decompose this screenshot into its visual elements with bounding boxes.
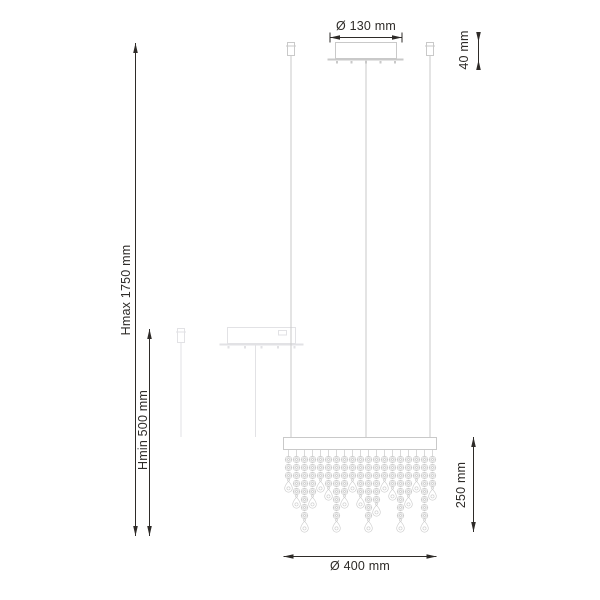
crystal-strand: [301, 450, 309, 532]
technical-drawing: [0, 0, 600, 600]
crystal-frame: [284, 438, 437, 450]
crystal-strand: [341, 450, 349, 508]
crystal-strand: [405, 450, 413, 508]
crystal-strand: [309, 450, 317, 508]
hmin-dimension-label: Hmin 500 mm: [136, 390, 150, 470]
crystal-strand: [373, 450, 381, 516]
crystal-strand: [333, 450, 341, 532]
ceiling-canopy: [336, 43, 397, 59]
crystal-strand: [413, 450, 421, 492]
canopy-diameter-label: Ø 130 mm: [336, 19, 396, 33]
canopy-height-label: 40 mm: [457, 30, 471, 69]
cable-gripper-right: [427, 43, 434, 56]
crystal-strand: [365, 450, 373, 532]
crystal-height-label: 250 mm: [454, 462, 468, 508]
crystal-strand: [389, 450, 397, 500]
ghost-flange-ticks: [228, 346, 296, 349]
cable-gripper-left: [288, 43, 295, 56]
crystal-strand: [381, 450, 389, 492]
crystal-strand: [357, 450, 365, 508]
hmax-dimension-label: Hmax 1750 mm: [119, 245, 133, 336]
ghost-cable-gripper: [178, 329, 185, 343]
crystal-strands: [285, 450, 437, 532]
crystal-strand: [349, 450, 357, 492]
crystal-strand: [285, 450, 293, 492]
lamp-diameter-label: Ø 400 mm: [330, 559, 390, 573]
ghost-lamp-min-height: [176, 328, 304, 438]
main-lamp: [284, 43, 437, 533]
crystal-strand: [429, 450, 437, 500]
crystal-strand: [325, 450, 333, 500]
crystal-strand: [421, 450, 429, 532]
technical-drawing-page: Hmax 1750 mm Hmin 500 mm Ø 130 mm 40 mm …: [0, 0, 600, 600]
canopy-flange-ticks: [336, 61, 396, 64]
crystal-strand: [397, 450, 405, 532]
crystal-strand: [317, 450, 325, 492]
crystal-strand: [293, 450, 301, 508]
